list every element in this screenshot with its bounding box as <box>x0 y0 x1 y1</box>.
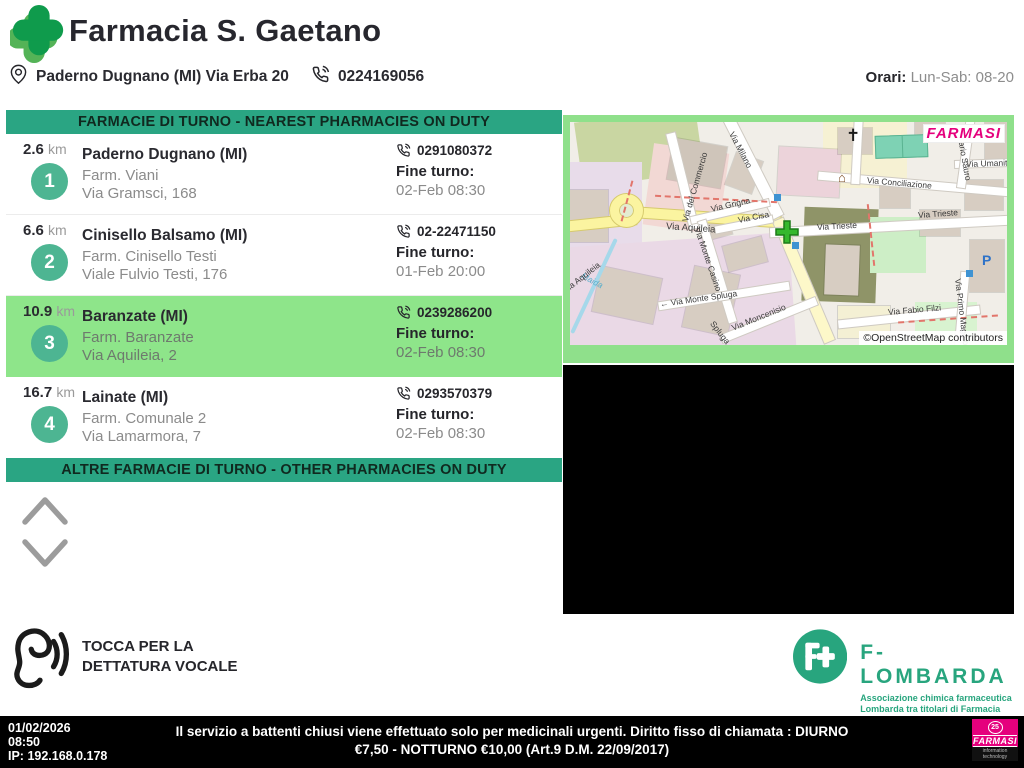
distance: 2.6 km <box>23 141 67 158</box>
kiosk-screen: Farmacia S. Gaetano Paderno Dugnano (MI)… <box>0 0 1024 768</box>
rank-badge: 1 <box>31 163 68 200</box>
pharmacy-name: Farm. Cinisello Testi <box>82 248 217 265</box>
farmasi-logo-name: FARMASI <box>973 735 1017 747</box>
map-building <box>570 190 608 242</box>
rank-badge: 4 <box>31 406 68 443</box>
pharmacy-name: Farm. Baranzate <box>82 329 194 346</box>
pharmacy-phone-row: 0239286200 <box>396 305 492 320</box>
pharmacies-on-duty-panel: FARMACIE DI TURNO - NEAREST PHARMACIES O… <box>6 110 562 580</box>
opening-hours: Orari: Lun-Sab: 08-20 <box>866 69 1014 86</box>
map-sports-field <box>875 134 929 159</box>
fine-turno-value: 02-Feb 08:30 <box>396 425 485 442</box>
pharmacy-phone-row: 0291080372 <box>396 143 492 158</box>
pharmacy-city: Baranzate (MI) <box>82 308 188 326</box>
pharmacy-street: Via Gramsci, 168 <box>82 185 197 202</box>
current-time: 08:50 <box>8 735 107 749</box>
church-icon: ✝ <box>846 126 860 146</box>
rank-badge: 2 <box>31 244 68 281</box>
f-lombarda-emblem-icon <box>793 628 847 685</box>
fine-turno-value: 01-Feb 20:00 <box>396 263 485 280</box>
system-info: 01/02/2026 08:50 IP: 192.168.0.178 <box>8 721 107 763</box>
farmasi-logo: 25 FARMASI information technology <box>972 719 1018 761</box>
street-map: ✝ ⌂ Via del Commercio Via Milano Via Gri… <box>570 122 1007 345</box>
ear-icon <box>8 624 70 690</box>
location-pin-icon <box>9 64 28 90</box>
map-poi-marker <box>966 270 973 277</box>
page-title: Farmacia S. Gaetano <box>69 13 381 49</box>
pharmacy-street: Viale Fulvio Testi, 176 <box>82 266 227 283</box>
pharmacy-row-3-selected[interactable]: 10.9 km 3 Baranzate (MI) Farm. Baranzate… <box>6 296 562 377</box>
pharmacy-phone-row: 02-22471150 <box>396 224 496 239</box>
pharmacy-row-2[interactable]: 6.6 km 2 Cinisello Balsamo (MI) Farm. Ci… <box>6 215 562 296</box>
map-poi-marker <box>774 194 781 201</box>
fine-turno-value: 02-Feb 08:30 <box>396 182 485 199</box>
fine-turno-value: 02-Feb 08:30 <box>396 344 485 361</box>
hours-value: Lun-Sab: 08-20 <box>911 69 1014 86</box>
map-frame: ✝ ⌂ Via del Commercio Via Milano Via Gri… <box>563 115 1014 363</box>
farmasi-map-watermark: FARMASI <box>923 124 1006 143</box>
distance: 16.7 km <box>23 384 75 401</box>
phone-icon <box>396 143 411 158</box>
f-lombarda-subtitle: Associazione chimica farmaceutica Lombar… <box>860 693 1024 715</box>
map-building <box>824 244 860 295</box>
fine-turno-label: Fine turno: <box>396 244 474 261</box>
scroll-up-chevron-icon[interactable] <box>22 496 68 526</box>
scroll-down-chevron-icon[interactable] <box>22 538 68 568</box>
pharmacy-address: Paderno Dugnano (MI) Via Erba 20 <box>36 68 289 86</box>
phone-icon <box>396 305 411 320</box>
media-panel-black <box>563 365 1014 614</box>
pharmacy-city: Lainate (MI) <box>82 389 168 407</box>
fine-turno-label: Fine turno: <box>396 406 474 423</box>
street-label: Via Umanità <box>966 157 1007 169</box>
status-bar: 01/02/2026 08:50 IP: 192.168.0.178 Il se… <box>0 716 1024 768</box>
f-lombarda-name: F-LOMBARDA <box>860 641 1024 689</box>
phone-icon <box>311 65 330 89</box>
pharmacy-city: Paderno Dugnano (MI) <box>82 146 247 164</box>
pharmacy-phone: 0224169056 <box>338 68 424 86</box>
parking-icon: P <box>982 252 991 268</box>
phone-icon <box>396 386 411 401</box>
shrine-icon: ⌂ <box>838 170 846 185</box>
fine-turno-label: Fine turno: <box>396 325 474 342</box>
ip-address: IP: 192.168.0.178 <box>8 749 107 763</box>
pharmacy-street: Via Lamarmora, 7 <box>82 428 201 445</box>
other-pharmacies-header: ALTRE FARMACIE DI TURNO - OTHER PHARMACI… <box>6 458 562 482</box>
phone-icon <box>396 224 411 239</box>
street-label: Via Aquileia <box>666 221 716 235</box>
pharmacy-location-marker-icon <box>775 220 799 249</box>
nearest-pharmacies-header: FARMACIE DI TURNO - NEAREST PHARMACIES O… <box>6 110 562 134</box>
distance: 10.9 km <box>23 303 75 320</box>
pharmacy-row-1[interactable]: 2.6 km 1 Paderno Dugnano (MI) Farm. Vian… <box>6 134 562 215</box>
pharmacy-name: Farm. Comunale 2 <box>82 410 206 427</box>
f-lombarda-logo: F-LOMBARDA Associazione chimica farmaceu… <box>793 628 1024 715</box>
distance: 6.6 km <box>23 222 67 239</box>
list-scroll-controls <box>22 496 562 568</box>
fine-turno-label: Fine turno: <box>396 163 474 180</box>
farmasi-logo-subtitle: information technology <box>972 747 1018 761</box>
pharmacy-address-row: Paderno Dugnano (MI) Via Erba 20 0224169… <box>9 64 424 90</box>
service-notice: Il servizio a battenti chiusi viene effe… <box>157 723 867 759</box>
hours-label: Orari: <box>866 69 907 86</box>
street-label: Via Trieste <box>817 220 857 232</box>
rank-badge: 3 <box>31 325 68 362</box>
pharmacy-cross-logo-icon <box>10 5 68 68</box>
pharmacy-street: Via Aquileia, 2 <box>82 347 177 364</box>
osm-attribution: ©OpenStreetMap contributors <box>859 331 1007 345</box>
anniversary-badge: 25 <box>988 721 1003 734</box>
current-date: 01/02/2026 <box>8 721 107 735</box>
pharmacy-city: Cinisello Balsamo (MI) <box>82 227 247 245</box>
pharmacy-row-4[interactable]: 16.7 km 4 Lainate (MI) Farm. Comunale 2 … <box>6 377 562 458</box>
voice-dictation-label: TOCCA PER LA DETTATURA VOCALE <box>82 637 238 677</box>
pharmacy-phone-row: 0293570379 <box>396 386 492 401</box>
pharmacy-name: Farm. Viani <box>82 167 158 184</box>
voice-dictation-button[interactable]: TOCCA PER LA DETTATURA VOCALE <box>8 624 238 690</box>
